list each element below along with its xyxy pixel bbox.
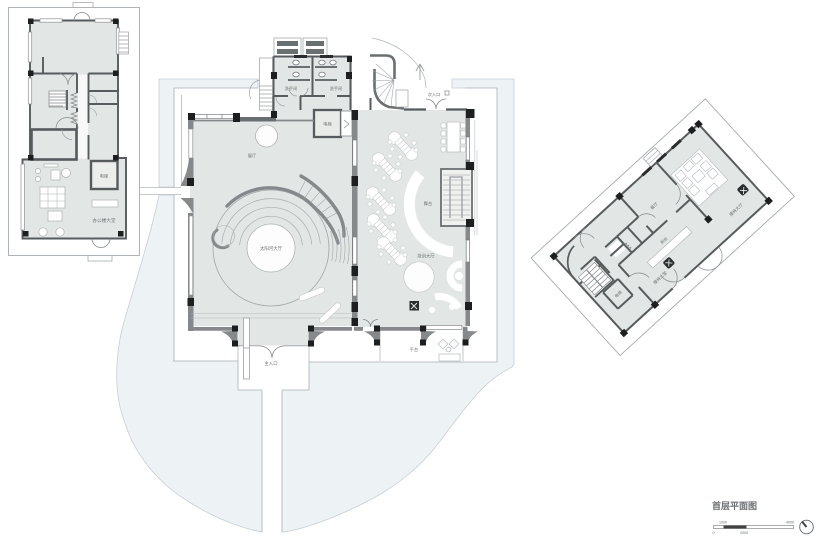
svg-text:舞台: 舞台 — [424, 200, 432, 207]
svg-text:电梯: 电梯 — [100, 173, 108, 180]
svg-text:平台: 平台 — [410, 346, 418, 353]
svg-text:洗手间: 洗手间 — [285, 85, 298, 92]
svg-text:培训大厅: 培训大厅 — [417, 253, 435, 260]
svg-text:0: 0 — [713, 531, 715, 535]
svg-text:办公楼大堂: 办公楼大堂 — [93, 217, 116, 224]
svg-text:2000: 2000 — [740, 531, 748, 535]
svg-text:首层平面图: 首层平面图 — [712, 500, 757, 511]
svg-text:次入口: 次入口 — [428, 91, 441, 98]
svg-text:1000: 1000 — [719, 521, 727, 525]
svg-text:电梯: 电梯 — [323, 121, 331, 128]
svg-text:太阳河大厅: 太阳河大厅 — [260, 245, 283, 252]
svg-text:4000: 4000 — [786, 521, 794, 525]
svg-text:洗手间: 洗手间 — [330, 85, 343, 92]
svg-text:主入口: 主入口 — [264, 360, 277, 366]
